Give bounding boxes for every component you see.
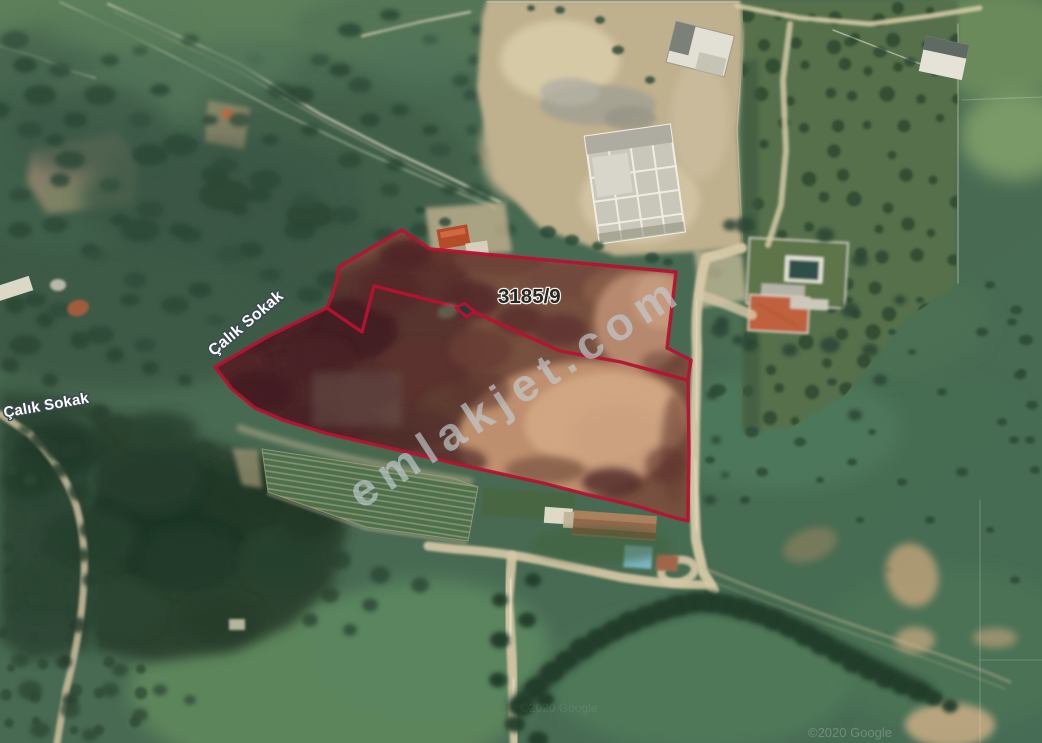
svg-text:3185/9: 3185/9 [498,285,561,308]
svg-text:©2020 Google: ©2020 Google [808,725,892,740]
svg-text:©2020 Google: ©2020 Google [520,701,598,715]
